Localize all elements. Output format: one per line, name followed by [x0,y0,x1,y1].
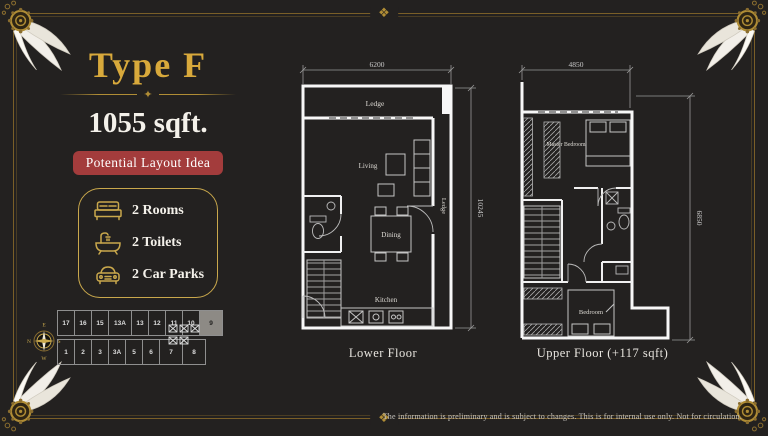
bathtub-icon [93,231,123,255]
unit-cell: 16 [74,310,92,336]
bed-icon [93,200,123,222]
unit-cell: 3A [108,339,126,365]
dining-label: Dining [381,231,401,239]
unit-cell: 15 [91,310,109,336]
unit-cell: 2 [74,339,92,365]
bedroom-label: Bedroom [579,309,603,316]
unit-size: 1055 sqft. [40,107,256,140]
upper-door-arcs [568,188,616,282]
upper-stairs [524,206,560,278]
feature-rooms-label: 2 Rooms [132,203,184,219]
lower-floor-plan: 6200 10245 [283,56,483,348]
site-plan-top-row: 17 16 15 13A 13 12 11 10 9 [58,310,228,336]
compass-bottom-label: W [41,356,47,362]
divider-ornament-icon: ✦ [143,88,152,101]
lower-right-pillar [442,86,451,114]
feature-toilets-label: 2 Toilets [132,235,181,251]
divider-line [60,94,137,95]
feature-carparks-label: 2 Car Parks [132,267,204,283]
unit-cell: 3 [91,339,109,365]
disclaimer-text: The information is preliminary and is su… [383,412,742,421]
compass-left-label: N [27,339,31,345]
slide: { "page": { "title": "Type F", "size": "… [0,0,768,432]
lower-stairs [307,260,341,318]
upper-master-bed [586,120,630,166]
lower-kitchen-counter [341,308,433,326]
site-plan-bottom-row: 1 2 3 3A 5 6 7 8 [58,339,228,365]
ledge-label: Ledge [366,99,385,108]
lower-bathroom [303,196,341,252]
corner-wing-gear-icon [684,348,768,436]
upper-height-dim: 6850 [695,211,704,226]
unit-cell-highlighted: 9 [199,310,223,336]
unit-cell: 12 [148,310,166,336]
unit-cell: 5 [125,339,143,365]
kitchen-label: Kitchen [375,296,398,304]
lower-living-furniture [378,140,430,196]
lower-bath-fixtures [310,202,341,239]
feature-box: 2 Rooms 2 Toilets [78,188,218,298]
unit-cell: 13 [131,310,149,336]
feature-rooms: 2 Rooms [93,200,217,222]
title-divider: ✦ [60,88,236,101]
lower-height-dim: 10245 [476,199,483,218]
divider-line [159,94,236,95]
upper-width-dim: 4850 [569,60,584,69]
frame-ornament-top-icon: ❖ [370,7,398,20]
living-label: Living [359,162,378,170]
upper-floor-label: Upper Floor (+117 sqft) [505,346,700,361]
feature-toilets: 2 Toilets [93,231,217,255]
ledge-right-label: Ledge [440,198,447,214]
lift-shaft-icon [168,324,202,348]
compass-top-label: E [42,323,46,329]
unit-type-title: Type F [40,46,256,86]
unit-cell: 17 [57,310,75,336]
lower-floor-label: Lower Floor [283,346,483,361]
upper-floor-plan: 4850 6850 [510,56,705,348]
feature-carparks: 2 Car Parks [93,264,217,286]
unit-cell: 6 [142,339,160,365]
site-plan: 17 16 15 13A 13 12 11 10 9 1 2 3 3A 5 6 … [58,310,228,365]
unit-cell: 13A [108,310,132,336]
car-icon [93,264,123,286]
layout-idea-badge: Potential Layout Idea [73,151,224,175]
unit-cell: 1 [57,339,75,365]
info-panel: Type F ✦ 1055 sqft. Potential Layout Ide… [40,46,256,298]
master-bedroom-label: Master Bedroom [546,142,586,148]
lower-width-dim: 6200 [370,60,385,69]
